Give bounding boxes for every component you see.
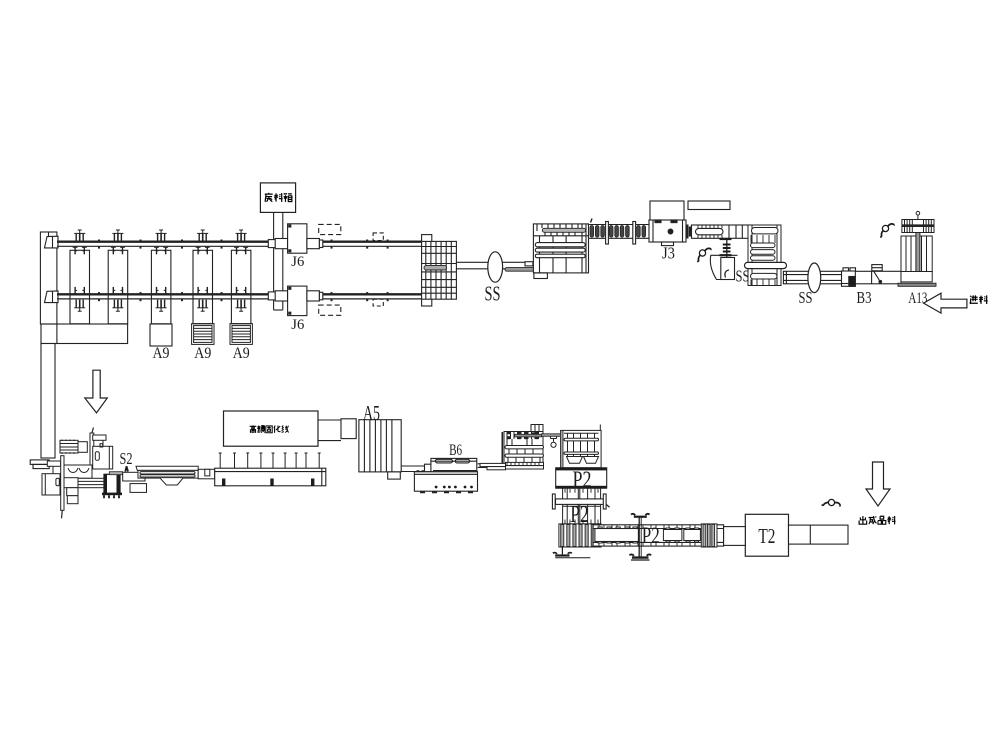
svg-text:SS: SS — [799, 288, 813, 307]
svg-text:T2: T2 — [758, 524, 775, 548]
svg-text:SS: SS — [736, 267, 750, 286]
svg-text:S2: S2 — [120, 449, 133, 468]
svg-text:J6: J6 — [291, 317, 304, 333]
svg-text:A9: A9 — [194, 345, 211, 362]
svg-text:A13: A13 — [908, 290, 927, 307]
svg-text:B3: B3 — [857, 288, 872, 307]
svg-text:P2: P2 — [642, 523, 660, 548]
svg-text:SS: SS — [485, 282, 501, 306]
svg-text:B6: B6 — [449, 442, 462, 459]
svg-text:J3: J3 — [662, 244, 675, 263]
svg-text:A9: A9 — [153, 345, 170, 362]
svg-text:A9: A9 — [233, 345, 250, 362]
svg-text:J6: J6 — [291, 254, 304, 270]
